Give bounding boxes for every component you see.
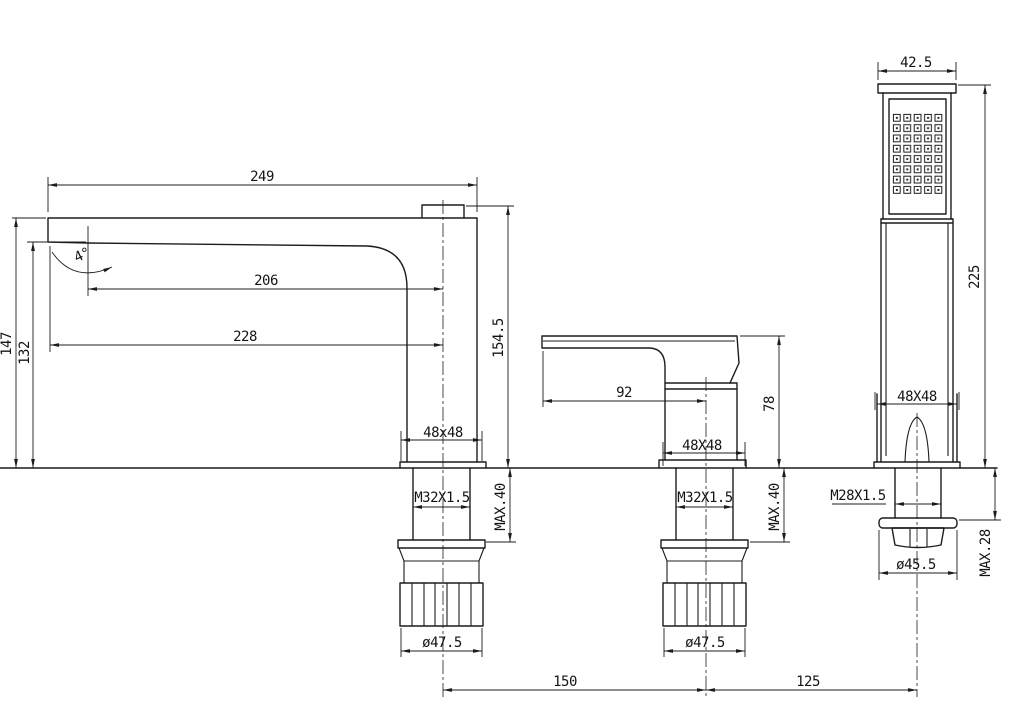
hole-spacing-dims: 150 125 xyxy=(443,674,917,690)
spout-clearance-label: 132 xyxy=(17,341,33,365)
valve-thread-label: M32X1.5 xyxy=(677,490,733,506)
spout-overall-label: 228 xyxy=(233,329,257,345)
shower-maxdeck-label: MAX.28 xyxy=(978,529,994,577)
valve-base-flange xyxy=(659,460,746,468)
spout-back-height-label: 154.5 xyxy=(491,318,507,358)
technical-drawing-page: 249 206 228 147 132 154.5 4° 48x48 M32X1… xyxy=(0,0,1024,714)
hand-shower-unit: 42.5 225 48X48 M28X1.5 MAX.28 ø45.5 xyxy=(830,55,1001,697)
spacing-right-label: 125 xyxy=(796,674,820,690)
valve-lever-outline xyxy=(542,336,739,383)
spout-height-label: 147 xyxy=(0,332,15,356)
spout-maxdeck-label: MAX.40 xyxy=(493,483,509,531)
valve-handle-label: 92 xyxy=(616,385,632,401)
shower-hex-nut xyxy=(892,528,944,548)
shower-height-label: 225 xyxy=(967,265,983,289)
shower-width-label: 42.5 xyxy=(900,55,932,71)
valve-height-label: 78 xyxy=(762,396,778,412)
shower-shank xyxy=(895,468,941,518)
shower-head-handle-joint xyxy=(881,219,953,223)
shower-head-cap xyxy=(878,84,956,93)
valve-nut-dia-label: ø47.5 xyxy=(685,635,725,651)
spout-reach-label: 249 xyxy=(250,169,274,185)
shower-hex-nut-facets xyxy=(910,529,927,547)
spout-nut-dia-label: ø47.5 xyxy=(422,635,462,651)
spout-angle-label: 4° xyxy=(72,245,93,266)
mixer-valve-unit: 92 78 48X48 M32X1.5 MAX.40 ø47.5 xyxy=(542,336,790,697)
spout-unit: 249 206 228 147 132 154.5 4° 48x48 M32X1… xyxy=(0,169,516,697)
shower-nozzle-grid xyxy=(892,113,944,195)
spout-thread-label: M32X1.5 xyxy=(414,490,470,506)
spout-base-label: 48x48 xyxy=(423,425,463,441)
shower-washer xyxy=(879,518,957,528)
valve-maxdeck-label: MAX.40 xyxy=(767,483,783,531)
spacing-left-label: 150 xyxy=(553,674,577,690)
shower-base-label: 48X48 xyxy=(897,389,937,405)
spout-bend-label: 206 xyxy=(254,273,278,289)
shower-thread-label: M28X1.5 xyxy=(830,488,886,504)
faucet-technical-drawing: 249 206 228 147 132 154.5 4° 48x48 M32X1… xyxy=(0,0,1024,714)
spout-outline xyxy=(48,218,477,462)
shower-nut-dia-label: ø45.5 xyxy=(896,557,936,573)
valve-base-label: 48X48 xyxy=(682,438,722,454)
